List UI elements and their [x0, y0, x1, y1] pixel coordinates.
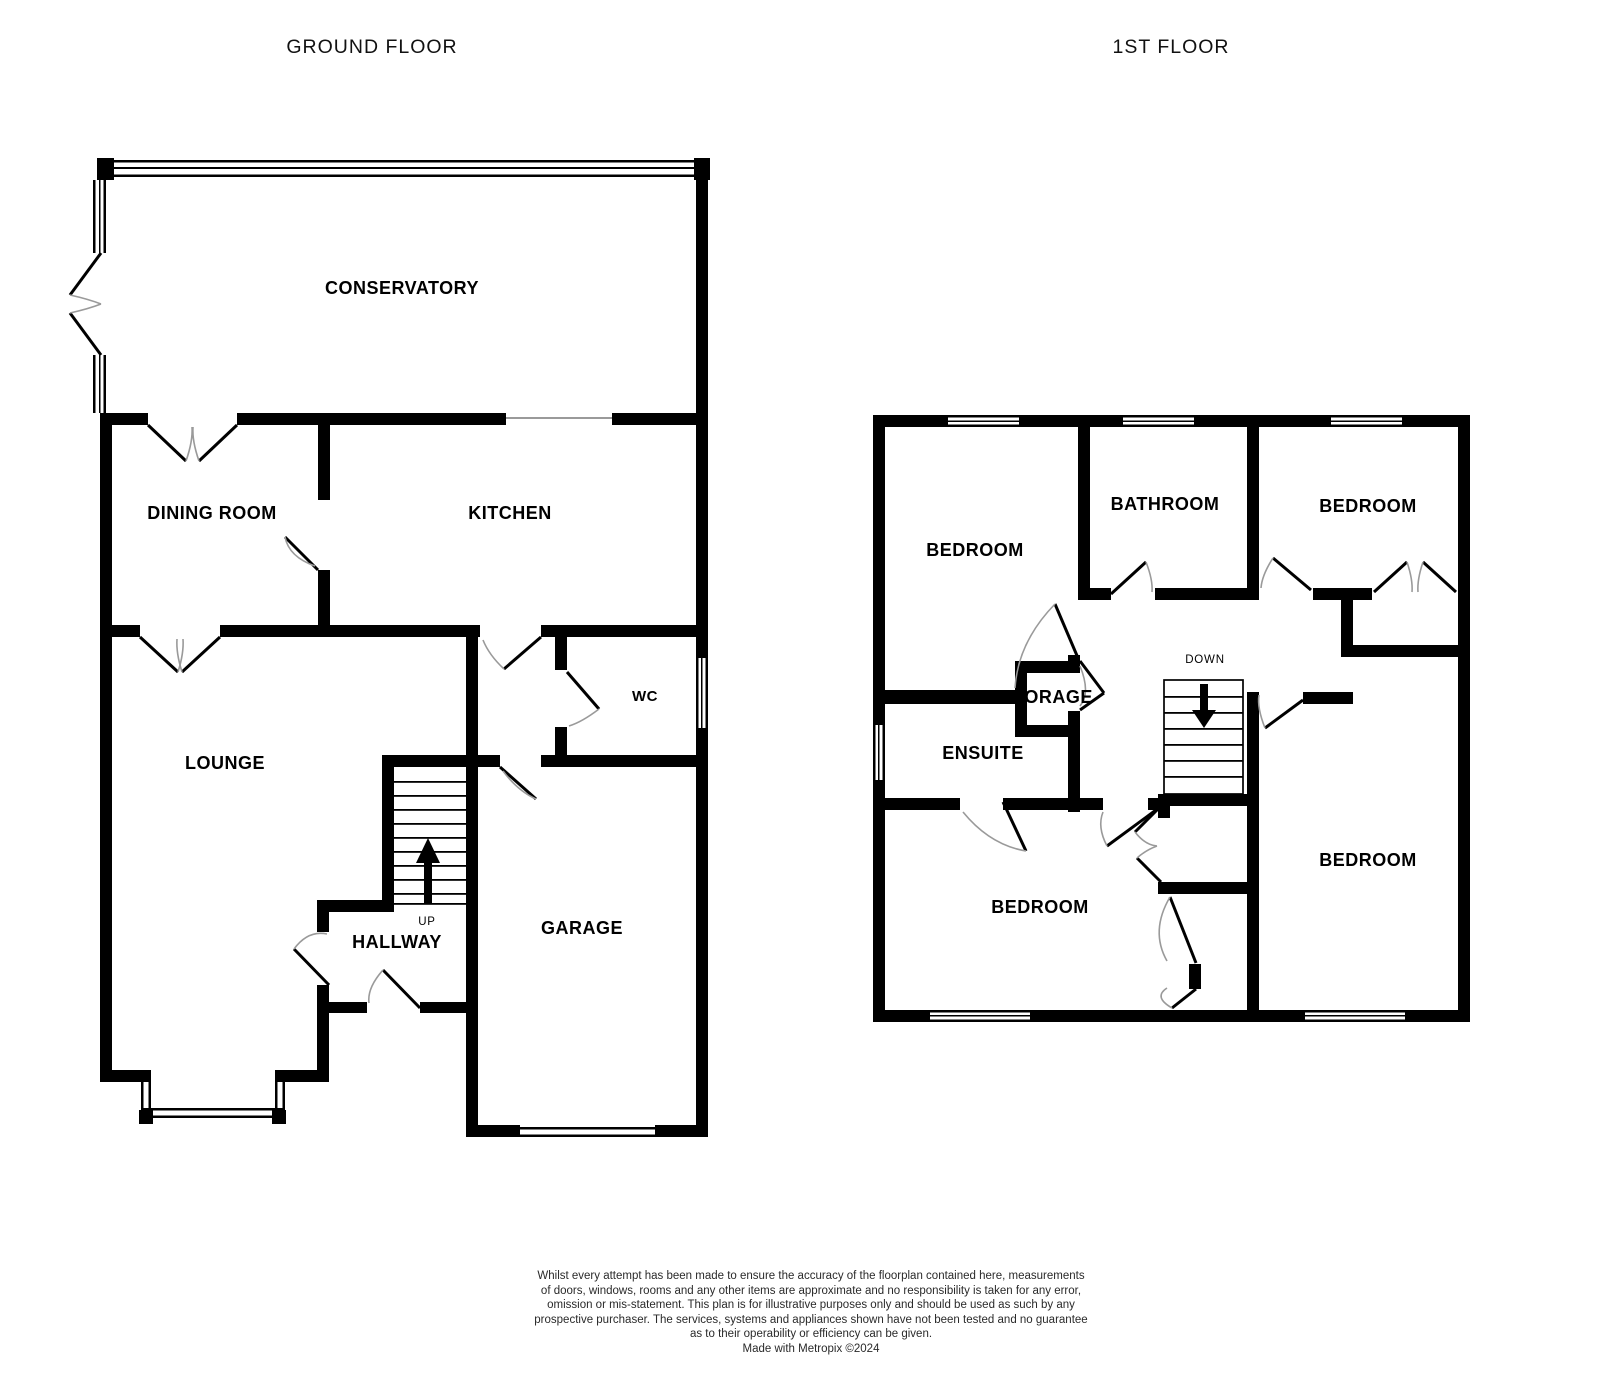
- door-dining-conservatory: [148, 425, 237, 461]
- door-kitchen-hall: [483, 637, 541, 669]
- room-label-bedroom-top-right: BEDROOM: [1319, 496, 1417, 516]
- lounge-bay-window: [139, 1082, 286, 1124]
- first-floor-title: 1ST FLOOR: [1112, 36, 1229, 58]
- door-wc: [567, 672, 599, 726]
- disclaimer-line: Whilst every attempt has been made to en…: [411, 1269, 1211, 1284]
- door-cupboard-understairs: [1135, 808, 1161, 882]
- stair-label-up: UP: [418, 916, 436, 928]
- metropix-credit: Made with Metropix ©2024: [411, 1342, 1211, 1357]
- room-label-bedroom-bottom-left: BEDROOM: [991, 897, 1089, 917]
- room-label-bedroom-bottom-right: BEDROOM: [1319, 850, 1417, 870]
- door-bedroom-top-right: [1261, 558, 1311, 590]
- room-label-dining-room: DINING ROOM: [147, 503, 277, 523]
- disclaimer-line: prospective purchaser. The services, sys…: [411, 1313, 1211, 1328]
- disclaimer-line: of doors, windows, rooms and any other i…: [411, 1284, 1211, 1299]
- floorplan-canvas: GROUND FLOOR: [0, 0, 1600, 1375]
- ground-floor-stairs: [394, 781, 466, 905]
- stair-label-down: DOWN: [1185, 654, 1225, 666]
- ground-floor-title: GROUND FLOOR: [286, 36, 457, 58]
- room-label-bedroom-top-left: BEDROOM: [926, 540, 1024, 560]
- room-label-wc: WC: [632, 688, 658, 705]
- door-conservatory-patio: [70, 253, 101, 355]
- room-label-hallway: HALLWAY: [352, 932, 442, 952]
- ground-floor-plan: GROUND FLOOR: [70, 36, 710, 1137]
- door-hall-garage: [500, 767, 536, 799]
- disclaimer-block: Whilst every attempt has been made to en…: [411, 1269, 1211, 1357]
- room-label-ensuite: ENSUITE: [942, 743, 1024, 763]
- room-label-lounge: LOUNGE: [185, 753, 265, 773]
- first-floor-plan: 1ST FLOOR: [873, 36, 1470, 1022]
- room-label-conservatory: CONSERVATORY: [325, 278, 479, 298]
- door-front-entrance: [369, 970, 420, 1008]
- first-floor-stairs: [1164, 680, 1243, 794]
- room-label-kitchen: KITCHEN: [468, 503, 552, 523]
- disclaimer-line: as to their operability or efficiency ca…: [411, 1327, 1211, 1342]
- door-bathroom: [1111, 562, 1152, 594]
- room-label-bathroom: BATHROOM: [1111, 494, 1220, 514]
- door-wardrobe-top-right: [1374, 562, 1456, 592]
- door-bedroom-bottom-left: [1101, 810, 1156, 846]
- door-cupboard-lower: [1159, 897, 1196, 1008]
- room-label-garage: GARAGE: [541, 918, 623, 938]
- door-bedroom-bottom-right: [1259, 695, 1303, 728]
- door-dining-kitchen: [285, 537, 318, 570]
- door-dining-lounge: [140, 637, 220, 672]
- disclaimer-line: omission or mis-statement. This plan is …: [411, 1298, 1211, 1313]
- room-label-storage: TORAGE: [1013, 687, 1093, 707]
- door-lounge-hallway: [294, 933, 329, 985]
